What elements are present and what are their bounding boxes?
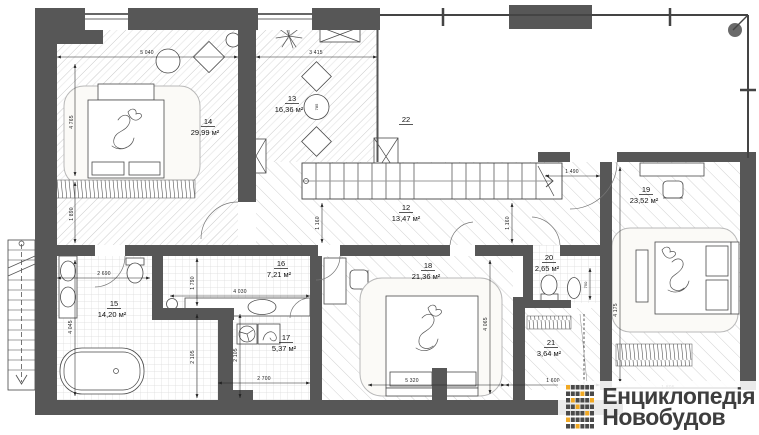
bed-icon-room14 [64, 84, 200, 186]
wall-terrace-bot-a [538, 152, 570, 162]
sink-icon [248, 300, 276, 315]
room-17-area: 5,37 м² [272, 344, 297, 353]
floorplan-screenshot: 785 [0, 0, 759, 435]
toilet-icon [541, 275, 557, 295]
label-room-22: 22 [399, 115, 413, 125]
pillow [129, 162, 160, 175]
dim-2105b: 2 105 [233, 348, 239, 362]
toilet-icon [127, 263, 143, 283]
room-22-number: 22 [402, 115, 410, 124]
wall-mid-3 [340, 245, 450, 256]
wall-left [35, 8, 57, 415]
bed-icon-room18 [360, 278, 502, 396]
headboard [731, 242, 739, 314]
wall-20-left [523, 245, 533, 307]
dim-2700: 2 700 [257, 376, 271, 382]
headboard [98, 84, 154, 100]
dim-4175: 4 175 [613, 303, 619, 317]
wall-17-left [218, 320, 233, 400]
bed-icon-room19 [612, 228, 739, 332]
desk [640, 163, 704, 176]
room-20-area: 2,65 м² [535, 264, 560, 273]
wall-right [740, 152, 756, 390]
dim-5320: 5 320 [405, 378, 419, 384]
room-13-area: 16,36 м² [275, 105, 304, 114]
room-14-number: 14 [204, 117, 212, 126]
logo-mosaic-icon [566, 385, 595, 429]
sink-icon [568, 278, 581, 299]
desk [324, 258, 346, 304]
room-21-number: 21 [547, 338, 555, 347]
room-14-area: 29,99 м² [191, 128, 220, 137]
round-table-icon [156, 49, 180, 73]
column-icon [728, 23, 742, 37]
room-16-number: 16 [277, 259, 285, 268]
dim-4765: 4 765 [69, 115, 75, 129]
terrace-railing [378, 8, 757, 162]
stairs-main [302, 163, 562, 199]
room-19-area: 23,52 м² [630, 196, 659, 205]
wall-mid-1 [57, 245, 95, 256]
wall-20-bottom [523, 300, 571, 308]
wall-mid-4 [475, 245, 530, 256]
room-17-number: 17 [282, 333, 290, 342]
room-13-number: 13 [288, 94, 296, 103]
wall-18-21 [513, 297, 525, 400]
room-15-number: 15 [110, 299, 118, 308]
room-18-area: 21,36 м² [412, 272, 441, 281]
rug-icon-room19 [616, 344, 692, 366]
room-20-number: 20 [545, 253, 553, 262]
stool-icon [226, 33, 240, 47]
wall-top-a [35, 8, 85, 30]
bathtub-icon [60, 348, 144, 394]
sink-icon [61, 287, 76, 307]
rug-icon-room14 [55, 180, 195, 198]
dim-5040: 5 040 [140, 50, 154, 56]
room-21-area: 3,64 м² [537, 349, 562, 358]
dim-1790: 1 790 [190, 276, 196, 290]
wall-17-18 [310, 256, 322, 400]
window-icon-2 [258, 8, 312, 30]
floor-lamp-icon [167, 299, 178, 310]
dim-1160a: 1 160 [315, 216, 321, 230]
room-15-area: 14,20 м² [98, 310, 127, 319]
window-icon-1 [85, 8, 128, 30]
dim-1890: 1 890 [69, 207, 75, 221]
wall-top-c [312, 8, 380, 30]
floorplan-canvas: 785 [0, 0, 759, 435]
pillow [706, 280, 728, 310]
logo-line-2: Новобудов [602, 407, 755, 428]
dim-4045: 4 045 [68, 320, 74, 334]
dim-2105a: 2 105 [190, 350, 196, 364]
washing-machine-icon [258, 324, 280, 344]
dim-4030: 4 030 [233, 289, 247, 295]
dim-4065: 4 065 [483, 317, 489, 331]
wall-corner-notch [57, 28, 103, 44]
laundry-fixtures [237, 324, 280, 344]
shelf-icon [527, 316, 571, 329]
room-18-number: 18 [424, 261, 432, 270]
dim-750: 750 [583, 281, 588, 288]
logo: Енциклопедія Новобудов [558, 381, 759, 434]
logo-mosaic-cells [566, 385, 594, 429]
wall-terrace-bot-b [617, 152, 740, 162]
dim-1490: 1 490 [565, 169, 579, 175]
room-16-area: 7,21 м² [267, 270, 292, 279]
wall-terrace-top-block [509, 5, 592, 29]
wall-mid-2 [125, 245, 318, 256]
logo-text: Енциклопедія Новобудов [602, 386, 755, 428]
room-12-number: 12 [402, 203, 410, 212]
wall-top-b [128, 8, 258, 30]
room-12-area: 13,47 м² [392, 214, 421, 223]
pillow [92, 162, 124, 175]
stairs-exterior [8, 240, 35, 390]
bench [636, 250, 648, 302]
dim-785: 785 [314, 103, 319, 110]
room-19-number: 19 [642, 185, 650, 194]
pillow [706, 246, 728, 276]
dim-1160b: 1 160 [505, 216, 511, 230]
wall-bottom [35, 400, 623, 415]
chair [663, 181, 683, 198]
wall-room14-right [238, 30, 256, 202]
dim-2690: 2 690 [97, 271, 111, 277]
wall-15-17 [152, 308, 234, 320]
dim-3415: 3 415 [309, 50, 323, 56]
